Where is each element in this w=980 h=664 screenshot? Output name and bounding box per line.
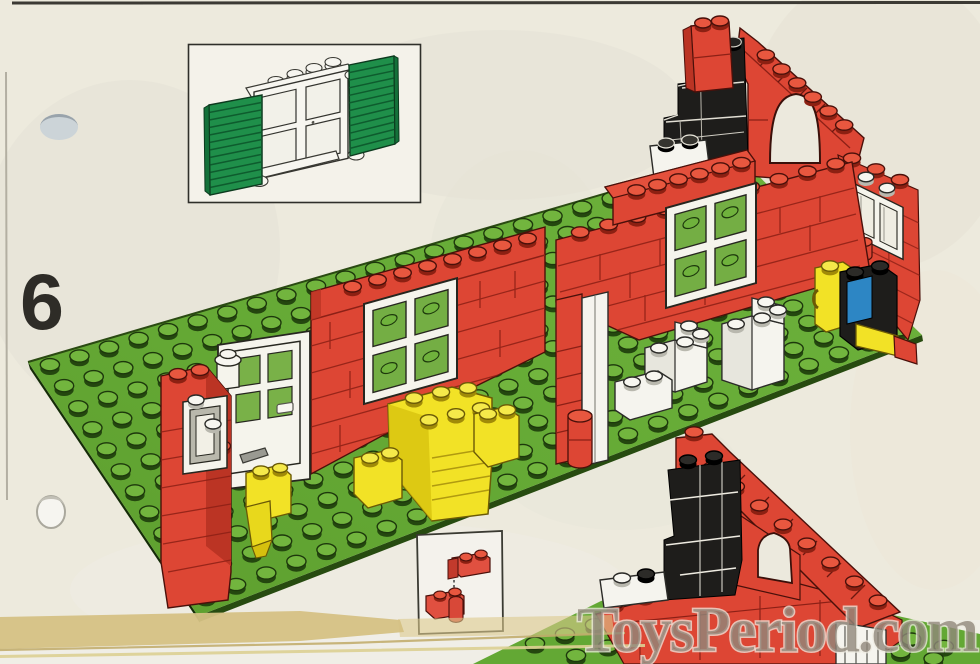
svg-text:6: 6 [20, 257, 64, 346]
svg-text:ToysPeriod.com: ToysPeriod.com [577, 595, 979, 664]
